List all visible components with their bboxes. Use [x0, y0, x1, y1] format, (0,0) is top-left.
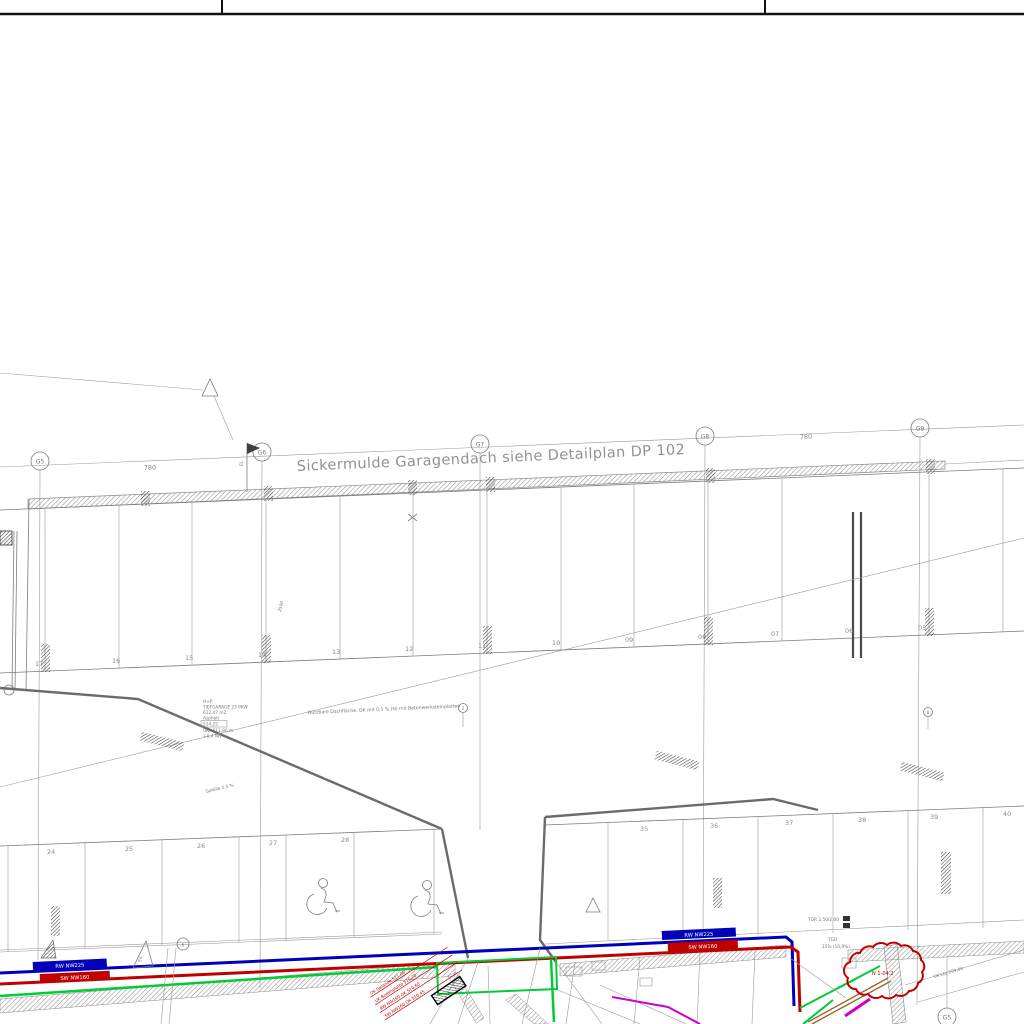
column-hatch [941, 852, 951, 894]
stall-number: 37 [785, 819, 793, 827]
wheelchair-icon [411, 881, 444, 917]
grid-bubble-label: G9 [916, 426, 925, 433]
drive-aisle: H+P TIEFGARAGE 23 PKW 612,47 m2 Asphalt … [0, 538, 1024, 962]
stall-number: 16 [112, 657, 120, 665]
stall-number: 14 [258, 651, 266, 659]
svg-text:RW NW225: RW NW225 [684, 932, 713, 939]
benchmark-triangle-icon [586, 898, 600, 912]
svg-text:2: 2 [462, 706, 465, 712]
stall-number: 25 [125, 845, 133, 853]
svg-text:612,47 m2: 612,47 m2 [203, 710, 227, 716]
cable-magenta [845, 999, 870, 1016]
stall-number: 26 [197, 842, 205, 850]
stall-number: 40 [1003, 810, 1011, 818]
stall-number: 28 [341, 836, 349, 844]
revision-text: N 1-04.2 [872, 971, 893, 977]
joint-hatch [900, 762, 945, 781]
svg-text:UK=511,90 m: UK=511,90 m [203, 728, 233, 734]
right-bottom-cluster: UK Ltg 509,80 TOR 2,50/2,00 TGD 15% (10,… [790, 916, 1024, 1024]
joint-hatch [655, 751, 700, 770]
supply-pipe-green [551, 960, 554, 1022]
stall-number: 36 [710, 822, 718, 830]
stall-number: 35 [640, 825, 648, 833]
svg-text:8: 8 [927, 710, 930, 716]
joint-hatch [140, 732, 185, 751]
wheelchair-icon [307, 879, 340, 915]
section-marker: 6 [177, 938, 189, 950]
stall-number: 24 [47, 848, 55, 856]
stall-number: 11 [478, 642, 486, 650]
svg-text:H+P: H+P [203, 699, 213, 705]
tgd-label: TGD [827, 937, 838, 943]
stall-number: 09 [625, 636, 633, 644]
stall-number: 07 [771, 630, 779, 638]
small-dim: 2500 [277, 600, 285, 612]
stall-number: 08 [698, 633, 706, 641]
gate-label: TOR 2,50/2,00 [807, 916, 850, 928]
grid-dim: 780 [800, 432, 813, 441]
section-marker: 8 [924, 708, 933, 730]
site-plan-sheet: G5 G6 G7 G8 G9 780 780 FL Sickermulde Ga… [0, 0, 1024, 1024]
boundary-line [0, 373, 233, 440]
column-hatch [925, 608, 934, 636]
uk-note: UK Ltg 509,80 [933, 966, 964, 980]
column-hatch [713, 878, 722, 908]
marker-triangle [133, 941, 153, 968]
stall-number: 05 [918, 624, 926, 632]
grid-bubble-label: G5 [943, 1015, 952, 1022]
grid-dim: 780 [144, 463, 157, 472]
parking-row-2-left: 24 25 26 27 28 [0, 829, 444, 952]
grid-bubble-label: G5 [36, 459, 45, 466]
site-plan-drawing: G5 G6 G7 G8 G9 780 780 FL Sickermulde Ga… [0, 0, 1024, 1024]
sewer-pipe-label: SW NW160 [40, 971, 110, 983]
benchmark-triangle-icon [202, 379, 218, 396]
stall-number: 06 [845, 627, 853, 635]
garage-note: H+P TIEFGARAGE 23 PKW 612,47 m2 Asphalt … [201, 699, 249, 740]
svg-text:TOR 2,50/2,00: TOR 2,50/2,00 [807, 917, 839, 923]
stall-number: 39 [930, 813, 938, 821]
stall-number: 13 [332, 648, 340, 656]
aisle-note: Nutzbare Dachfläche, OK mit 0,5 % (N) mi… [308, 703, 461, 716]
column-hatch [0, 531, 12, 545]
stall-number: 38 [858, 816, 866, 824]
left-edge-details [0, 531, 17, 695]
svg-text:TIEFGARAGE 23 PKW: TIEFGARAGE 23 PKW [202, 705, 249, 711]
grid-axes: G5 G6 G7 G8 G9 780 780 FL [0, 419, 1024, 1005]
grid-bubble-label: G7 [476, 442, 485, 449]
slope-note: Gefälle 2,5 % [205, 782, 234, 795]
stall-number: 27 [269, 839, 277, 847]
flag-label: FL [239, 461, 245, 466]
parking-row-2-right: 35 36 37 38 39 40 [545, 806, 1024, 944]
grid-bubble-label: G8 [701, 434, 710, 441]
stall-number: 10 [552, 639, 560, 647]
column-hatch [51, 906, 60, 936]
svg-text:+0,4 Niv: +0,4 Niv [203, 734, 222, 740]
svg-text:514,25: 514,25 [203, 722, 218, 728]
grid-bubble-label: G6 [258, 450, 267, 457]
svg-text:6: 6 [182, 943, 185, 949]
title-block-border [0, 0, 1024, 14]
storm-pipe-label: RW NW225 [662, 928, 736, 940]
slope-label: 15% (10,9%) [822, 944, 850, 950]
stall-number: 15 [185, 654, 193, 662]
stall-number: 17 [35, 660, 43, 668]
stall-number: 12 [405, 645, 413, 653]
marker-triangle [41, 940, 56, 958]
